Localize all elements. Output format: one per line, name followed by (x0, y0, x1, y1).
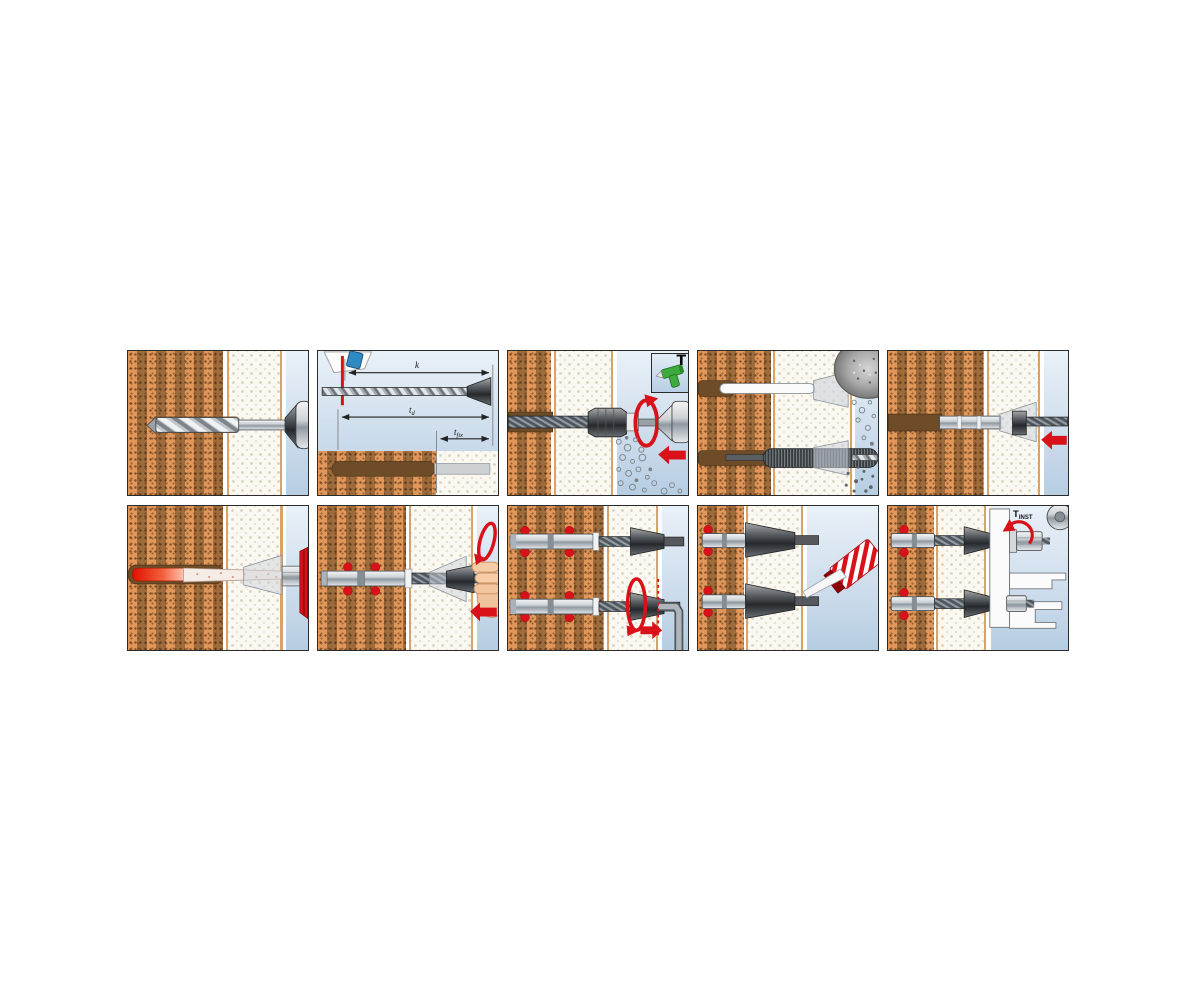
torque-label-sub: INST (1019, 515, 1033, 521)
injected-mortar (132, 568, 187, 581)
injection-gun-icon (300, 547, 308, 618)
depth-mark-line (341, 356, 344, 405)
injection-nozzle-icon (183, 555, 299, 594)
debris-dots (845, 466, 875, 493)
installed-anchor-top (702, 523, 818, 558)
step-6-panel-inject-mortar (127, 505, 309, 651)
blow-out-pump-icon (720, 351, 878, 407)
installed-anchor-bottom (510, 593, 680, 621)
step-3-panel-drive-sieve-sleeve: T (507, 350, 689, 496)
drill-bit-with-stop-icon (322, 378, 491, 406)
panel-art (128, 351, 308, 495)
dim-label-tfix: tfix (454, 428, 463, 440)
anchor-sleeve-icon (321, 569, 412, 588)
panel-art (508, 506, 688, 650)
installed-anchor-top (510, 528, 684, 556)
step-4-panel-clean-hole (697, 350, 879, 496)
panel-art (128, 506, 308, 650)
panel-art (318, 506, 498, 650)
insert-direction-arrow-icon (658, 446, 686, 465)
torque-wrench-icon (1047, 506, 1068, 530)
dim-label-td: td (409, 406, 415, 418)
panel-art (698, 506, 878, 650)
dim-label-k: k (415, 361, 419, 370)
drilled-hole (888, 414, 941, 431)
installation-instructions-figure: k td tfix (0, 0, 1200, 1000)
step-8-panel-set-anchor (507, 505, 689, 651)
panel-art (888, 506, 1068, 650)
step-9-panel-apply-sealant (697, 505, 879, 651)
green-drill-icon (652, 354, 687, 391)
depth-gauge-icon (324, 351, 371, 405)
drill-chuck-icon (285, 401, 308, 448)
torque-label: TINST (1013, 510, 1032, 521)
k-label: k (415, 360, 419, 370)
installed-anchor-bottom (702, 584, 818, 619)
dust-dots (852, 400, 876, 445)
td-label-sub: d (412, 410, 415, 417)
step-2-panel-set-drilling-depth: k td tfix (317, 350, 499, 496)
tfix-label-sub: fix (457, 432, 464, 439)
panel-art (318, 351, 498, 495)
dimension-arrows (342, 373, 489, 439)
step-1-panel-drill-hole (127, 350, 309, 496)
panel-art (698, 351, 878, 495)
sealant-can-icon (803, 539, 878, 598)
step-5-panel-insert-sleeve (887, 350, 1069, 496)
cleaning-brush-icon (726, 441, 878, 476)
rotation-arrow-icon (474, 522, 498, 566)
step-10-panel-mount-fixture: TINST (887, 505, 1069, 651)
panel-art (888, 351, 1068, 495)
step-7-panel-insert-anchor-rod (317, 505, 499, 651)
drilled-hole (332, 461, 490, 476)
drill-bit-icon (147, 416, 286, 434)
drill-chuck-icon (658, 401, 688, 442)
insert-direction-arrow-icon (1041, 431, 1067, 450)
rotary-mode-inset: T (651, 353, 689, 393)
